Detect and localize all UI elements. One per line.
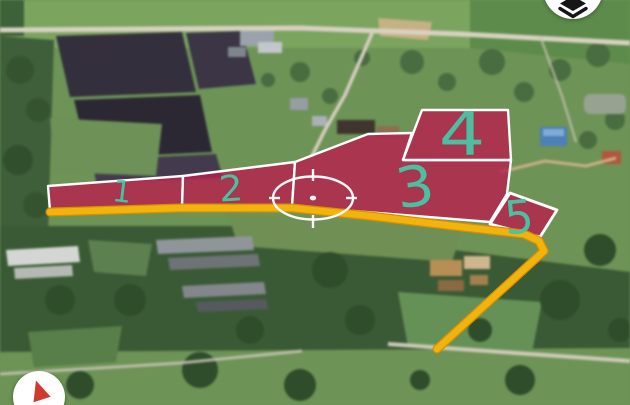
compass-north-icon	[24, 376, 54, 404]
map-overlays	[0, 0, 630, 405]
map-canvas[interactable]: 1 2 3 4 5	[0, 0, 630, 405]
parcel-label-3: 3	[392, 158, 438, 219]
parcel-label-5: 5	[502, 193, 535, 241]
route-path	[50, 208, 544, 349]
parcel-label-4: 4	[439, 105, 486, 165]
parcel-label-1: 1	[111, 177, 134, 209]
parcel-label-2: 2	[218, 171, 245, 209]
layers-icon	[557, 0, 589, 22]
